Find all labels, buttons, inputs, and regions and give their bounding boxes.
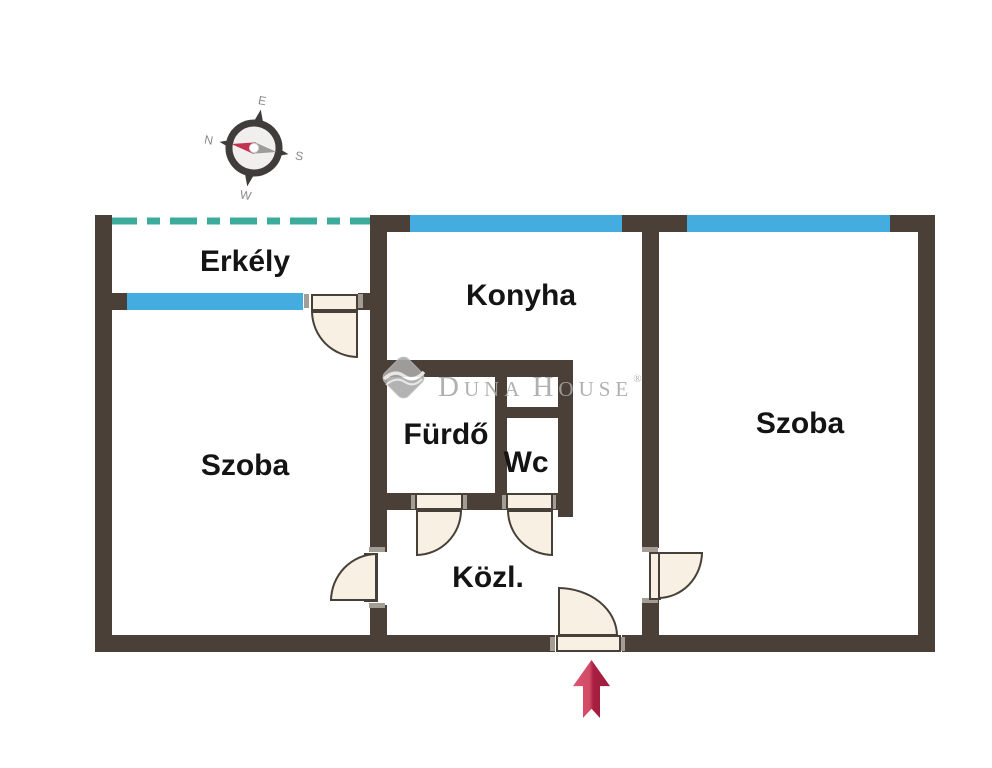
balcony-door-leaf [311,294,358,311]
entrance-door-swing [558,587,618,636]
registered-trademark-symbol: ® [633,373,641,385]
wall-bathroom-bottom [370,493,415,510]
room-label-szoba-left: Szoba [201,450,289,482]
compass-letter-w: W [239,187,253,202]
wall-top-segment [622,215,687,232]
compass-letter-n: N [203,132,214,147]
entrance-door-leaf [556,635,621,652]
room-label-kozl: Közl. [452,562,524,594]
room-label-konyha: Konyha [466,280,576,312]
wordmark-ouse: OUSE [558,379,633,400]
compass-letter-e: E [257,94,267,108]
wordmark-h: H [532,373,558,402]
wc-door-leaf [506,493,553,510]
wall-right-room-divider [642,232,659,548]
room-label-furdo: Fürdő [404,419,489,451]
wall-top-segment [370,215,410,232]
left-room-door-swing [330,553,377,601]
floor-plan: Erkély Konyha Szoba Szoba Fürdő Wc Közl.… [0,0,992,768]
door-jamb [358,294,363,308]
compass-rose-icon: E W N S [202,94,306,202]
wall-bathroom-bottom [463,493,507,510]
wall-bottom-left [95,635,555,652]
wall-balcony-segment [95,293,127,310]
wall-wc-top [507,407,558,418]
bathroom-door-leaf [415,493,463,510]
wall-central-vertical [370,605,387,635]
window-right-room [687,215,890,232]
wc-door-swing [507,510,553,556]
room-label-wc: Wc [504,447,549,479]
balcony-dashed-line [110,217,372,225]
wall-left-outer [95,215,112,652]
wordmark-una: UNA [464,379,525,400]
wordmark-d: D [438,373,464,402]
balcony-door-swing [311,311,358,358]
room-label-erkely: Erkély [200,246,290,278]
wall-top-segment [890,215,935,232]
brand-wordmark: D UNA H OUSE ® [438,373,642,404]
door-jamb [550,637,555,651]
entrance-arrow-up-icon [573,660,610,718]
door-jamb [369,547,385,552]
wall-right-room-divider [642,600,659,635]
window-kitchen [410,215,622,232]
compass-letter-s: S [294,148,304,163]
duna-house-diamond-icon [376,352,432,404]
brand-watermark: D UNA H OUSE ® [376,352,642,404]
wall-right-outer [918,215,935,652]
door-jamb [369,603,385,608]
right-room-door-swing [658,552,703,599]
door-jamb [304,294,309,308]
wall-bottom-right [622,635,935,652]
window-balcony [127,293,303,310]
room-label-szoba-right: Szoba [756,408,844,440]
bathroom-door-swing [416,510,462,556]
